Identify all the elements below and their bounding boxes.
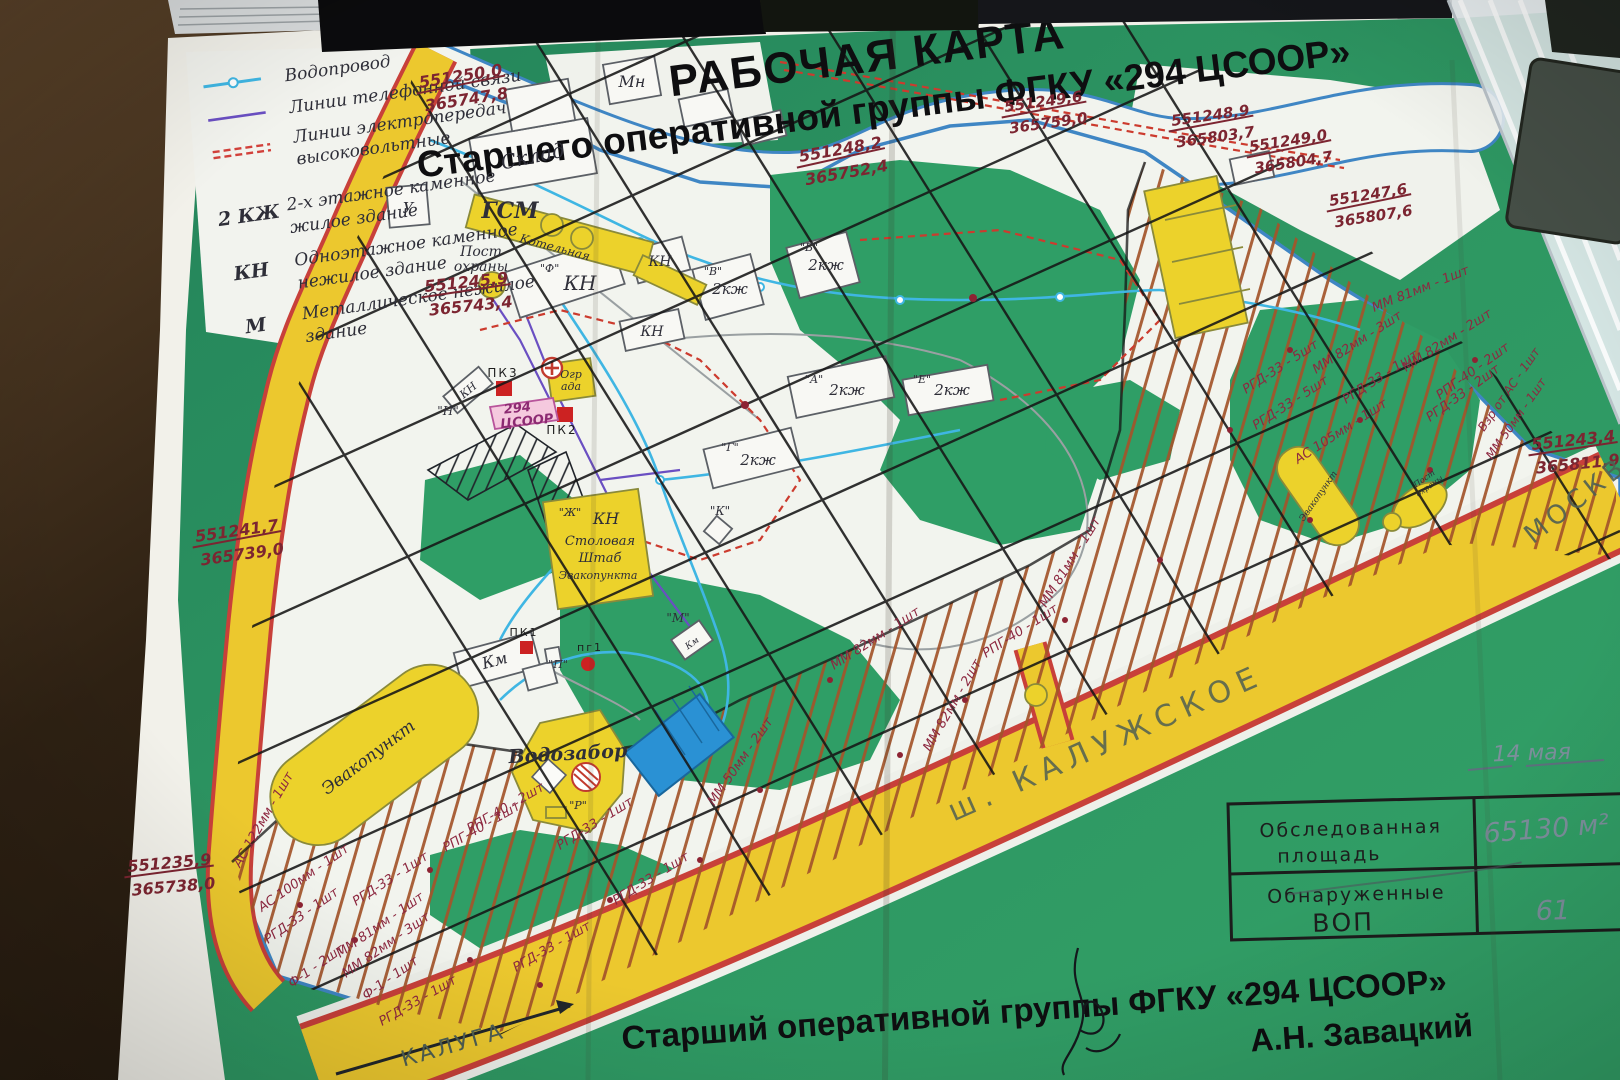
photo-vignette [0,0,1620,1080]
photo-of-working-map: РАБОЧАЯ КАРТА Старшего оперативной групп… [0,0,1620,1080]
